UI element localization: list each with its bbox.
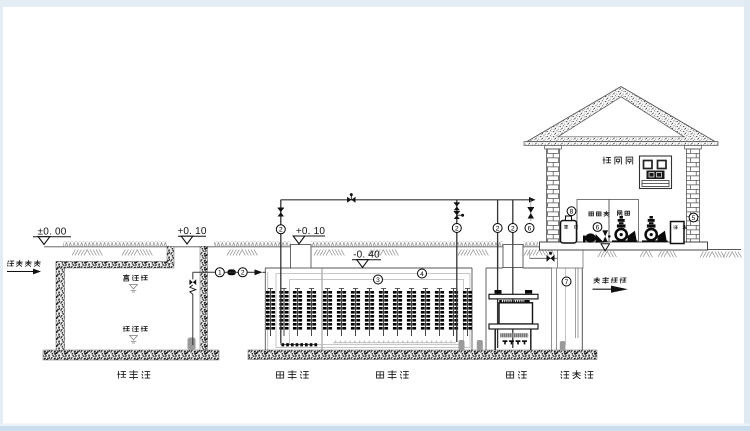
svg-text:+0. 10: +0. 10 — [296, 226, 326, 237]
svg-text:6: 6 — [596, 224, 600, 231]
svg-text:4: 4 — [420, 271, 424, 278]
svg-text:7: 7 — [565, 279, 569, 286]
svg-text:±0. 00: ±0. 00 — [38, 227, 67, 238]
svg-text:2: 2 — [241, 270, 245, 277]
svg-text:5: 5 — [692, 215, 696, 222]
svg-text:3: 3 — [376, 277, 380, 284]
svg-text:2: 2 — [455, 225, 459, 232]
svg-text:2: 2 — [279, 227, 283, 234]
svg-text:8: 8 — [570, 209, 574, 216]
svg-text:2: 2 — [496, 225, 500, 232]
svg-text:2: 2 — [511, 225, 515, 232]
svg-text:-0. 40: -0. 40 — [353, 250, 380, 261]
svg-text:6: 6 — [528, 225, 532, 232]
svg-text:1: 1 — [218, 270, 222, 277]
svg-text:+0. 10: +0. 10 — [177, 226, 207, 237]
